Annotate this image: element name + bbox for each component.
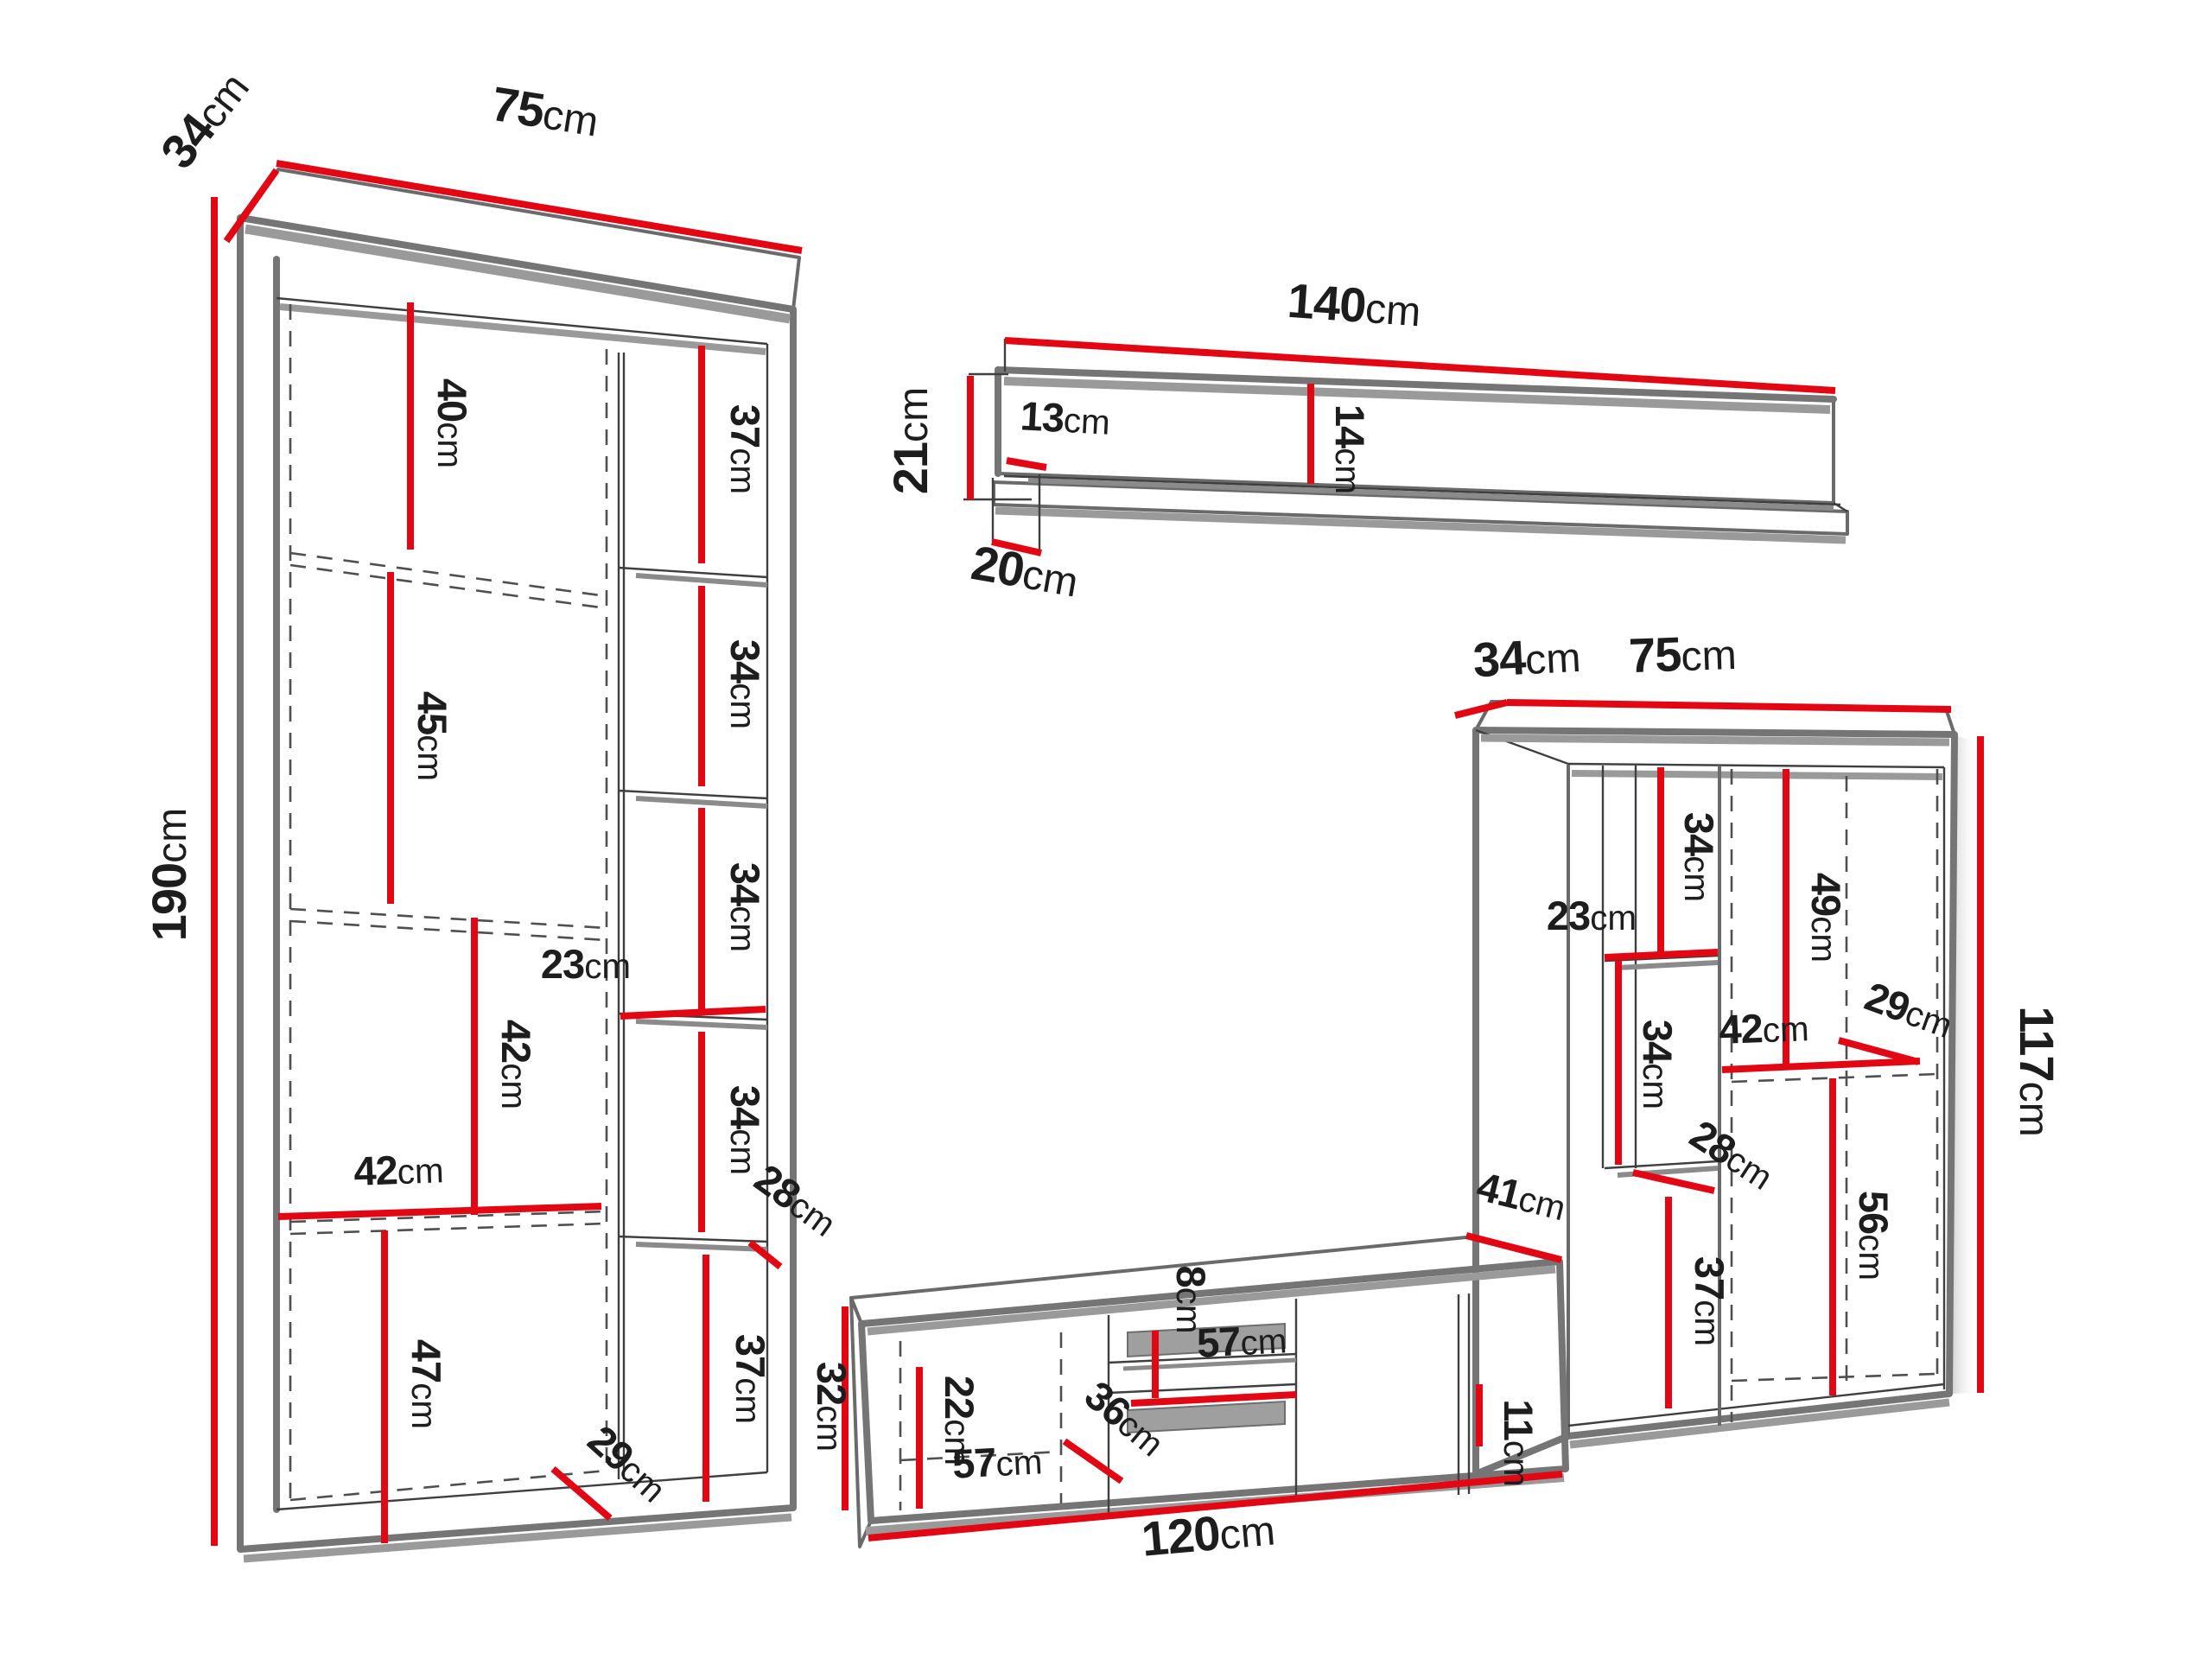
right-cabinet: 34cm 75cm 117cm 34cm 23cm 34cm 28cm 37cm… bbox=[1455, 625, 2064, 1474]
left-cabinet-interior-lines bbox=[290, 304, 767, 1503]
left-cabinet-dimension-lines bbox=[214, 163, 802, 1546]
dim-left-cabinet-inner-width: 42cm bbox=[353, 1145, 444, 1194]
dim-left-cabinet-depth: 34cm bbox=[149, 60, 258, 179]
dim-right-cabinet-right-bottom: 56cm bbox=[1851, 1191, 1897, 1281]
dim-tv-stand-base-height: 11cm bbox=[1496, 1399, 1541, 1487]
dim-tv-stand-depth: 41cm bbox=[1472, 1163, 1571, 1230]
dim-right-cabinet-shelf-top: 34cm bbox=[1676, 812, 1722, 902]
dim-wall-shelf-width: 140cm bbox=[1286, 273, 1423, 337]
dim-left-cabinet-shelf-4: 34cm bbox=[722, 1085, 768, 1175]
dim-right-cabinet-shelf-mid: 34cm bbox=[1635, 1020, 1681, 1109]
dim-wall-shelf-total-height: 21cm bbox=[883, 387, 938, 495]
dim-right-cabinet-shelf-bottom: 37cm bbox=[1687, 1256, 1732, 1346]
dim-right-cabinet-width: 75cm bbox=[1628, 625, 1738, 683]
dim-left-cabinet-section-2: 45cm bbox=[410, 691, 455, 781]
dim-wall-shelf-depth: 20cm bbox=[968, 535, 1084, 607]
wall-shelf: 140cm 21cm 13cm 14cm 20cm bbox=[883, 273, 1847, 607]
dim-left-cabinet-width: 75cm bbox=[488, 76, 603, 147]
dim-wall-shelf-back-height: 13cm bbox=[1019, 392, 1111, 442]
dim-tv-stand-height: 32cm bbox=[809, 1362, 855, 1452]
dim-right-cabinet-right-width: 42cm bbox=[1718, 1003, 1809, 1052]
dim-tv-stand-niche-width: 57cm bbox=[1196, 1315, 1288, 1365]
dim-left-cabinet-shelf-width: 23cm bbox=[541, 941, 631, 987]
dim-left-cabinet-shelf-3: 34cm bbox=[722, 862, 768, 952]
furniture-dimension-diagram: 140cm 21cm 13cm 14cm 20cm bbox=[0, 0, 2212, 1659]
dim-right-cabinet-column-width: 23cm bbox=[1547, 893, 1637, 938]
tv-stand: 32cm 120cm 22cm 57cm 36cm 8cm 57cm 11cm … bbox=[809, 1163, 1571, 1567]
dim-left-cabinet-section-3: 42cm bbox=[493, 1020, 539, 1109]
dim-tv-stand-width: 120cm bbox=[1140, 1500, 1278, 1566]
diagram-canvas: 140cm 21cm 13cm 14cm 20cm bbox=[0, 0, 2212, 1659]
left-cabinet-body bbox=[240, 218, 793, 1549]
dim-left-cabinet-section-4: 47cm bbox=[404, 1339, 449, 1429]
dim-left-cabinet-section-1: 40cm bbox=[429, 378, 475, 468]
dim-left-cabinet-base: 29cm bbox=[580, 1416, 677, 1510]
dim-left-cabinet-shelf-1: 37cm bbox=[722, 404, 768, 494]
dim-tv-stand-door-width: 57cm bbox=[951, 1436, 1044, 1486]
left-cabinet: 34cm 75cm 190cm 40cm 45cm 42cm 42cm 47cm… bbox=[142, 60, 846, 1559]
dim-wall-shelf-front-height: 14cm bbox=[1327, 404, 1373, 494]
dim-left-cabinet-height: 190cm bbox=[142, 808, 196, 942]
dim-right-cabinet-height: 117cm bbox=[2010, 1006, 2064, 1137]
dim-left-cabinet-shelf-2: 34cm bbox=[722, 639, 768, 729]
dim-left-cabinet-shelf-5: 37cm bbox=[728, 1334, 773, 1424]
dim-right-cabinet-right-top: 49cm bbox=[1803, 873, 1849, 963]
dim-right-cabinet-depth: 34cm bbox=[1471, 627, 1582, 687]
